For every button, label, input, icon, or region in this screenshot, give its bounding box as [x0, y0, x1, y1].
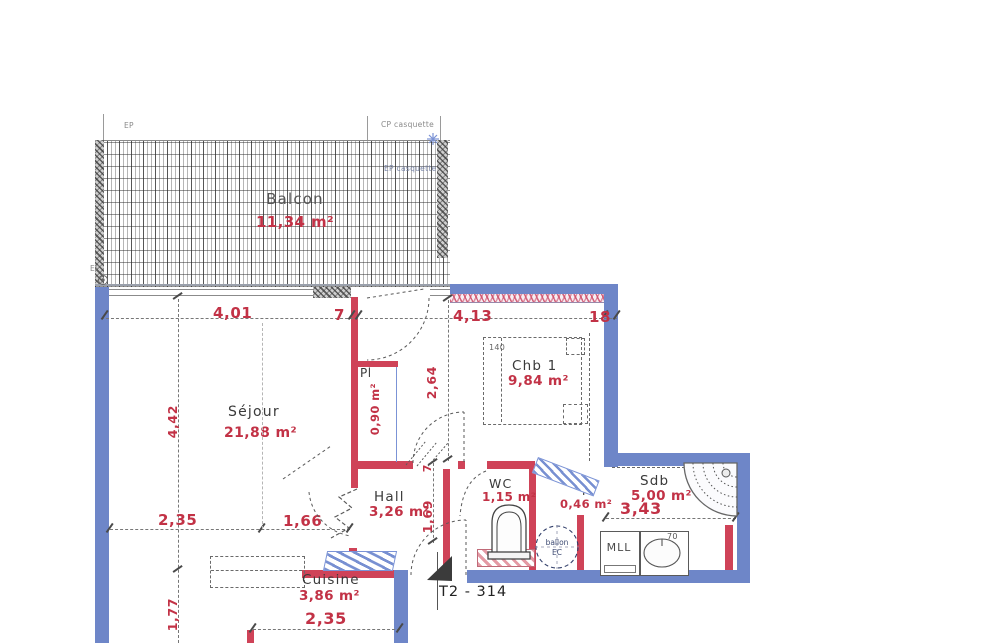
wall-closet-sdb-right — [577, 515, 584, 570]
kitchen-counter — [210, 556, 305, 588]
wall-exterior-sdb-top — [604, 453, 750, 466]
wall-wc-top-right — [487, 461, 535, 469]
dim-sdb-width: 3,43 — [620, 499, 662, 518]
window-pier — [313, 287, 351, 298]
wall-exterior-top-right-hatch — [450, 294, 618, 303]
dim-top-2: 7 — [334, 306, 345, 324]
ref-line — [440, 116, 441, 140]
annotation-ep-casquette: EP casquette — [384, 164, 437, 173]
kitchen-counter-line — [211, 570, 302, 572]
ref-line — [367, 116, 368, 140]
vanity-icon — [640, 531, 689, 576]
closet-sejour-label: Pl — [360, 366, 372, 380]
nightstand-icon — [563, 404, 588, 424]
dim-line-bottom — [253, 629, 400, 630]
balcony-right-edge — [437, 140, 448, 258]
wc-window-sill — [477, 549, 535, 567]
closet-sejour-area: 0,90 m² — [368, 383, 382, 435]
balcony-label: Balcon — [235, 190, 355, 208]
dim-line-left — [178, 299, 179, 643]
plan-overlay — [0, 0, 1000, 643]
dim-top-3: 4,13 — [453, 307, 492, 325]
water-heater-icon — [535, 525, 579, 569]
dim-tick — [602, 512, 610, 522]
dim-top-1: 4,01 — [213, 304, 252, 322]
window-line — [430, 289, 450, 290]
washing-machine-label: MLL — [600, 541, 638, 554]
room-label-sdb: Sdb — [640, 473, 669, 489]
dim-left-2: 1,77 — [165, 598, 180, 631]
wall-wc-door-jamb — [458, 461, 465, 469]
dim-top-4: 18 — [589, 308, 611, 326]
floor-plan: Balcon 11,34 m² EP CP casquette EP casqu… — [0, 0, 1000, 643]
nightstand-icon — [566, 338, 585, 355]
water-heater-label2: EC — [541, 548, 573, 557]
shower-icon — [684, 463, 737, 516]
ref-line — [103, 114, 104, 140]
bed-width-label: 140 — [489, 343, 505, 352]
dim-mid-2: 1,66 — [283, 512, 322, 530]
water-heater-label1: ballon — [541, 538, 573, 547]
dim-helper-line — [262, 323, 263, 529]
unit-title: T2 - 314 — [439, 584, 507, 600]
window-line — [109, 289, 313, 290]
room-area-sejour: 21,88 m² — [224, 425, 297, 441]
annotation-ep-bottom: EP — [90, 264, 100, 273]
window-line — [109, 295, 313, 296]
wall-sdb-corner — [725, 525, 733, 570]
room-label-wc: WC — [489, 476, 513, 491]
dim-hall-height: 1,69 — [420, 500, 435, 533]
balcony-bottom-line — [95, 284, 450, 286]
sliding-door-hatch — [532, 457, 600, 497]
dim-line-chb1 — [448, 300, 449, 461]
dim-mid-1: 2,35 — [158, 511, 197, 529]
dim-tick — [428, 537, 438, 545]
wall-wc-left — [443, 469, 450, 570]
room-label-hall: Hall — [374, 489, 405, 505]
dim-tick — [346, 523, 354, 533]
wall-exterior-top-right — [450, 284, 618, 294]
closet-sdb-area: 0,46 m² — [560, 497, 612, 511]
washing-machine-drawer — [604, 565, 636, 573]
dim-hall-thickness: 7 — [421, 464, 434, 472]
room-area-cuisine: 3,86 m² — [299, 588, 360, 604]
wall-exterior-sdb-right — [737, 453, 750, 583]
annotation-ep-top: EP — [124, 121, 134, 130]
dim-line-sdb — [606, 518, 736, 519]
wall-exterior-left — [95, 287, 109, 643]
wall-hall-top-left — [351, 461, 413, 469]
sdb-soffit-line — [612, 467, 700, 469]
entrance-frame-line — [437, 552, 438, 610]
room-label-cuisine: Cuisine — [302, 572, 360, 588]
room-label-chb1: Chb 1 — [512, 358, 557, 374]
dim-tick — [443, 455, 453, 463]
wardrobe-line — [589, 333, 591, 461]
balcony-area: 11,34 m² — [235, 213, 355, 231]
dim-chb1-depth: 2,64 — [424, 366, 439, 399]
wall-partition-main — [351, 297, 358, 488]
room-area-chb1: 9,84 m² — [508, 373, 569, 389]
closet-front-line — [396, 367, 397, 462]
room-label-sejour: Séjour — [228, 404, 280, 420]
dim-bottom-1: 2,35 — [305, 609, 347, 628]
kitchen-window-hatch — [323, 551, 397, 571]
room-area-wc: 1,15 m² — [482, 490, 536, 504]
dim-left-1: 4,42 — [165, 405, 180, 438]
annotation-cp-casquette: CP casquette — [381, 120, 434, 129]
vanity-width-label: 70 — [667, 532, 678, 541]
balcony-door-arc — [367, 289, 429, 360]
